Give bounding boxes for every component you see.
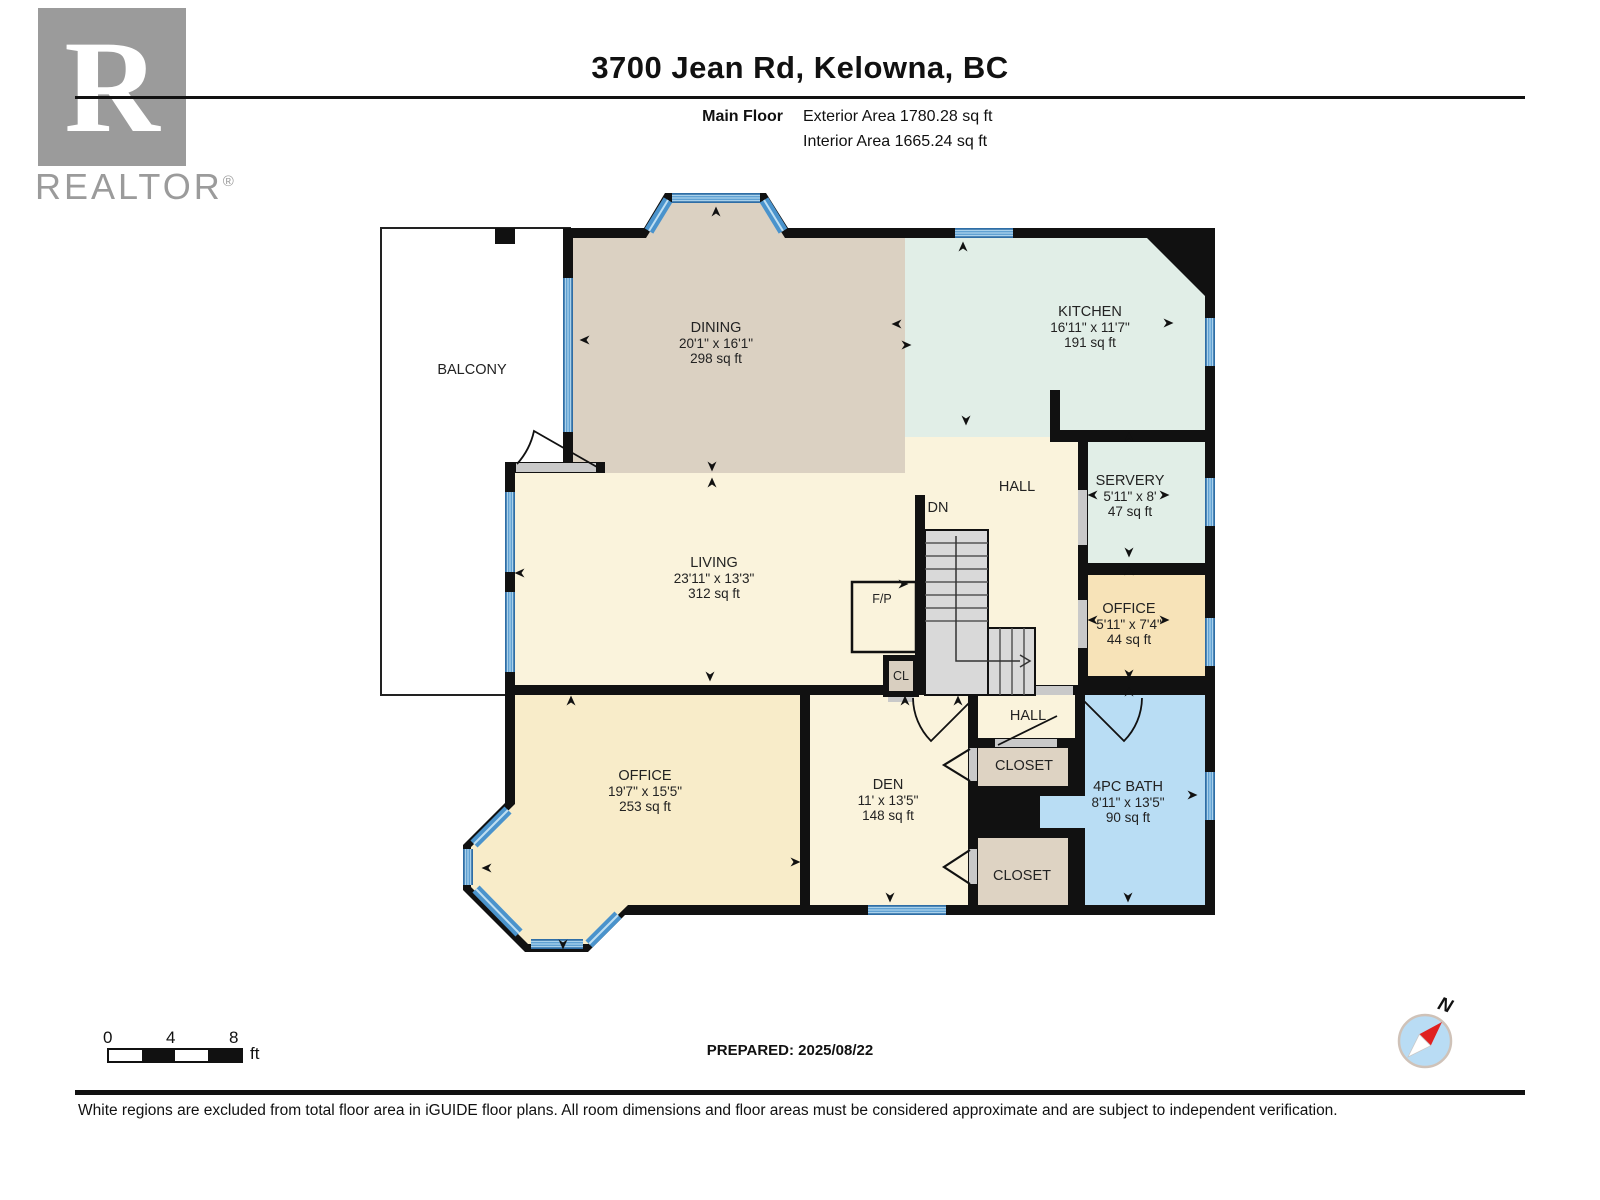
floor-plan-svg: BALCONY DINING 20'1" x 16'1" 298 sq ft K… <box>0 0 1600 1200</box>
svg-text:8'11" x 13'5": 8'11" x 13'5" <box>1091 795 1164 810</box>
label-servery: SERVERY <box>1096 473 1165 489</box>
label-bath: 4PC BATH <box>1093 779 1163 795</box>
svg-text:5'11" x 7'4": 5'11" x 7'4" <box>1096 617 1162 632</box>
svg-text:20'1" x 16'1": 20'1" x 16'1" <box>679 336 753 351</box>
svg-text:47 sq ft: 47 sq ft <box>1108 504 1153 519</box>
svg-text:23'11" x 13'3": 23'11" x 13'3" <box>674 571 755 586</box>
label-fireplace: F/P <box>872 592 891 606</box>
scale-unit: ft <box>250 1044 259 1064</box>
room-bath-notch <box>1040 796 1085 828</box>
disclaimer-text: White regions are excluded from total fl… <box>78 1102 1538 1120</box>
svg-text:253 sq ft: 253 sq ft <box>619 799 671 814</box>
svg-text:5'11" x 8': 5'11" x 8' <box>1103 489 1156 504</box>
label-living: LIVING <box>690 555 738 571</box>
label-stairs-dn: DN <box>928 500 949 516</box>
label-hall-upper: HALL <box>999 479 1035 495</box>
scale-tick-0: 0 <box>103 1028 112 1048</box>
floor-plan-page: R REALTOR® 3700 Jean Rd, Kelowna, BC Mai… <box>0 0 1600 1200</box>
svg-text:298 sq ft: 298 sq ft <box>690 351 742 366</box>
prepared-date: PREPARED: 2025/08/22 <box>560 1042 1020 1059</box>
label-closet-1: CLOSET <box>995 758 1053 774</box>
svg-text:148 sq ft: 148 sq ft <box>862 808 914 823</box>
svg-text:312 sq ft: 312 sq ft <box>688 586 740 601</box>
label-office-right: OFFICE <box>1102 601 1155 617</box>
scale-tick-8: 8 <box>229 1028 238 1048</box>
label-hall-lower: HALL <box>1010 708 1046 724</box>
svg-text:16'11" x 11'7": 16'11" x 11'7" <box>1050 320 1130 335</box>
label-closet-2: CLOSET <box>993 868 1051 884</box>
svg-text:90 sq ft: 90 sq ft <box>1106 810 1151 825</box>
scale-bar <box>107 1048 243 1063</box>
label-balcony: BALCONY <box>437 362 507 378</box>
label-office-left: OFFICE <box>618 768 671 784</box>
label-den: DEN <box>873 777 904 793</box>
svg-text:11' x 13'5": 11' x 13'5" <box>858 793 919 808</box>
svg-text:19'7" x 15'5": 19'7" x 15'5" <box>608 784 682 799</box>
svg-text:191 sq ft: 191 sq ft <box>1064 335 1116 350</box>
label-closet-cl: CL <box>893 669 909 683</box>
scale-tick-4: 4 <box>166 1028 175 1048</box>
label-kitchen: KITCHEN <box>1058 304 1122 320</box>
footer-rule <box>75 1090 1525 1095</box>
compass-icon <box>1392 1005 1462 1075</box>
label-dining: DINING <box>691 320 742 336</box>
svg-text:44 sq ft: 44 sq ft <box>1107 632 1152 647</box>
